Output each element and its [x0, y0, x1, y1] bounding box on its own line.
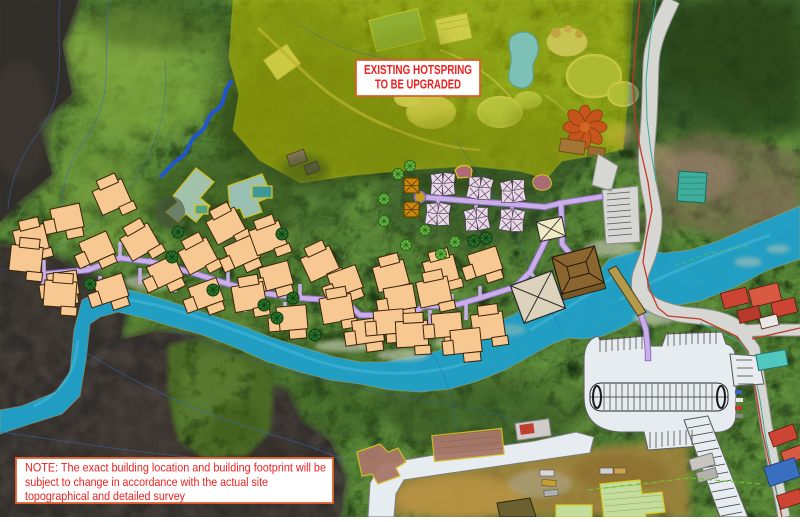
- svg-text:TO BE UPGRADED: TO BE UPGRADED: [375, 77, 461, 91]
- svg-text:subject to change in accordanc: subject to change in accordance with the…: [25, 475, 268, 489]
- svg-text:NOTE: The exact building locat: NOTE: The exact building location and bu…: [25, 461, 326, 475]
- svg-text:topographical and detailed sur: topographical and detailed survey: [25, 489, 186, 503]
- svg-text:EXISTING HOTSPRING: EXISTING HOTSPRING: [364, 63, 472, 77]
